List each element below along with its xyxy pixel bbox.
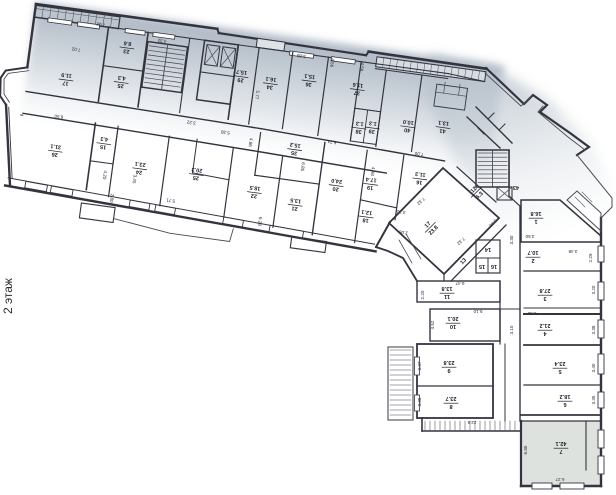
svg-text:22.9: 22.9	[467, 420, 476, 425]
svg-text:7.32: 7.32	[456, 236, 466, 246]
svg-text:4.52: 4.52	[430, 320, 435, 329]
svg-text:14: 14	[484, 246, 491, 252]
svg-text:10: 10	[450, 323, 456, 329]
svg-text:23.8: 23.8	[444, 359, 455, 365]
svg-text:42.1: 42.1	[556, 440, 567, 446]
svg-text:5.71: 5.71	[165, 197, 175, 203]
svg-text:18.2: 18.2	[560, 393, 571, 399]
svg-text:11: 11	[444, 293, 450, 299]
svg-text:17.4: 17.4	[365, 175, 377, 183]
svg-text:20.3: 20.3	[191, 166, 203, 173]
svg-text:12.1: 12.1	[361, 208, 373, 215]
svg-text:31.1: 31.1	[50, 142, 62, 149]
svg-text:7: 7	[559, 448, 562, 454]
svg-text:2: 2	[531, 257, 534, 263]
svg-text:7.32: 7.32	[416, 196, 426, 206]
svg-text:3.40: 3.40	[591, 363, 596, 372]
svg-text:16: 16	[491, 263, 497, 269]
svg-text:3.35: 3.35	[591, 395, 596, 404]
svg-text:10.7: 10.7	[528, 249, 539, 255]
svg-text:4.3: 4.3	[118, 74, 127, 81]
svg-text:23.7: 23.7	[446, 395, 457, 401]
svg-text:1.3: 1.3	[369, 119, 378, 126]
svg-text:24.0: 24.0	[331, 177, 343, 184]
svg-text:2.29: 2.29	[588, 253, 593, 262]
svg-text:2 этаж: 2 этаж	[1, 278, 15, 314]
svg-text:4.20: 4.20	[102, 170, 108, 180]
svg-text:6.85: 6.85	[300, 162, 306, 172]
svg-text:5.10: 5.10	[473, 309, 482, 314]
svg-text:4: 4	[543, 330, 547, 336]
svg-text:3.48: 3.48	[568, 249, 577, 254]
svg-text:8.6: 8.6	[123, 39, 132, 46]
svg-text:3.38: 3.38	[591, 325, 596, 334]
svg-text:6.28: 6.28	[257, 217, 263, 227]
svg-text:3.37: 3.37	[417, 361, 422, 370]
svg-text:6.27: 6.27	[555, 477, 564, 482]
svg-text:20.1: 20.1	[448, 315, 459, 321]
svg-text:6.30: 6.30	[527, 311, 536, 316]
svg-text:3: 3	[543, 295, 546, 301]
svg-text:3.30: 3.30	[509, 235, 514, 244]
svg-text:13.5: 13.5	[290, 196, 302, 203]
svg-text:23.4: 23.4	[554, 360, 566, 366]
svg-text:6.85: 6.85	[523, 445, 528, 454]
svg-text:3.38: 3.38	[417, 397, 422, 406]
svg-text:1.3: 1.3	[356, 120, 365, 127]
svg-text:6: 6	[563, 401, 566, 407]
svg-text:15: 15	[479, 263, 485, 269]
svg-text:3.50: 3.50	[525, 234, 534, 239]
svg-text:3.20: 3.20	[591, 285, 596, 294]
svg-text:3.10: 3.10	[509, 325, 514, 334]
svg-text:5: 5	[558, 368, 561, 374]
svg-text:2.80: 2.80	[109, 193, 115, 203]
svg-text:13.8: 13.8	[442, 285, 453, 291]
svg-text:21.2: 21.2	[540, 322, 551, 328]
svg-text:27.8: 27.8	[540, 287, 551, 293]
svg-text:8: 8	[449, 403, 452, 409]
svg-text:9: 9	[447, 367, 450, 373]
svg-text:3.45: 3.45	[132, 174, 138, 184]
svg-text:4.3: 4.3	[100, 135, 109, 142]
svg-text:2.20: 2.20	[420, 290, 425, 299]
svg-text:43: 43	[513, 184, 519, 190]
svg-text:6.47: 6.47	[455, 281, 464, 286]
svg-text:1: 1	[534, 218, 537, 224]
svg-text:16.8: 16.8	[531, 210, 542, 216]
svg-text:18.5: 18.5	[249, 184, 261, 191]
svg-text:23.1: 23.1	[134, 160, 146, 167]
